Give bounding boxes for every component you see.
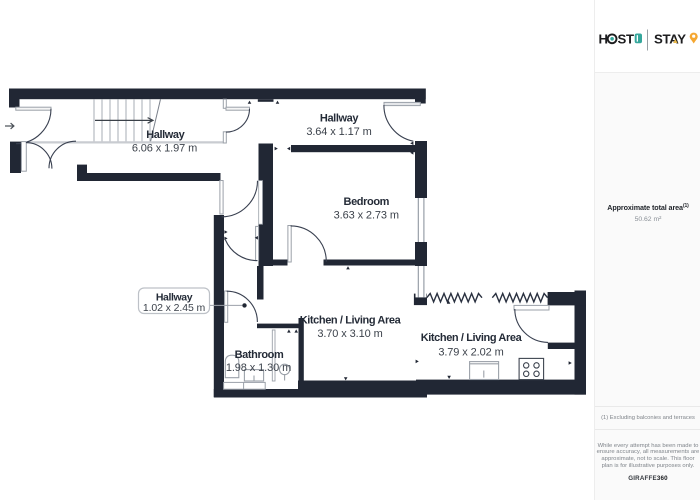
svg-text:Bedroom: Bedroom: [344, 196, 390, 208]
svg-text:3.64 x 1.17 m: 3.64 x 1.17 m: [306, 126, 371, 138]
svg-text:1.02 x 2.45 m: 1.02 x 2.45 m: [143, 302, 206, 314]
svg-text:3.63 x 2.73 m: 3.63 x 2.73 m: [334, 210, 399, 222]
svg-text:Hallway: Hallway: [320, 112, 359, 124]
svg-text:H: H: [599, 32, 608, 47]
svg-text:Kitchen / Living Area: Kitchen / Living Area: [300, 315, 402, 327]
svg-text:3.70 x 3.10 m: 3.70 x 3.10 m: [317, 328, 382, 340]
svg-text:ST: ST: [618, 32, 634, 47]
svg-text:1.98 x 1.30 m: 1.98 x 1.30 m: [226, 362, 291, 374]
svg-text:Hallway: Hallway: [146, 129, 185, 141]
svg-text:STAY: STAY: [654, 32, 686, 47]
svg-text:Bathroom: Bathroom: [235, 349, 284, 361]
svg-text:6.06 x 1.97 m: 6.06 x 1.97 m: [132, 143, 197, 155]
svg-text:3.79 x 2.02 m: 3.79 x 2.02 m: [438, 347, 503, 359]
svg-text:Kitchen / Living Area: Kitchen / Living Area: [421, 332, 523, 344]
